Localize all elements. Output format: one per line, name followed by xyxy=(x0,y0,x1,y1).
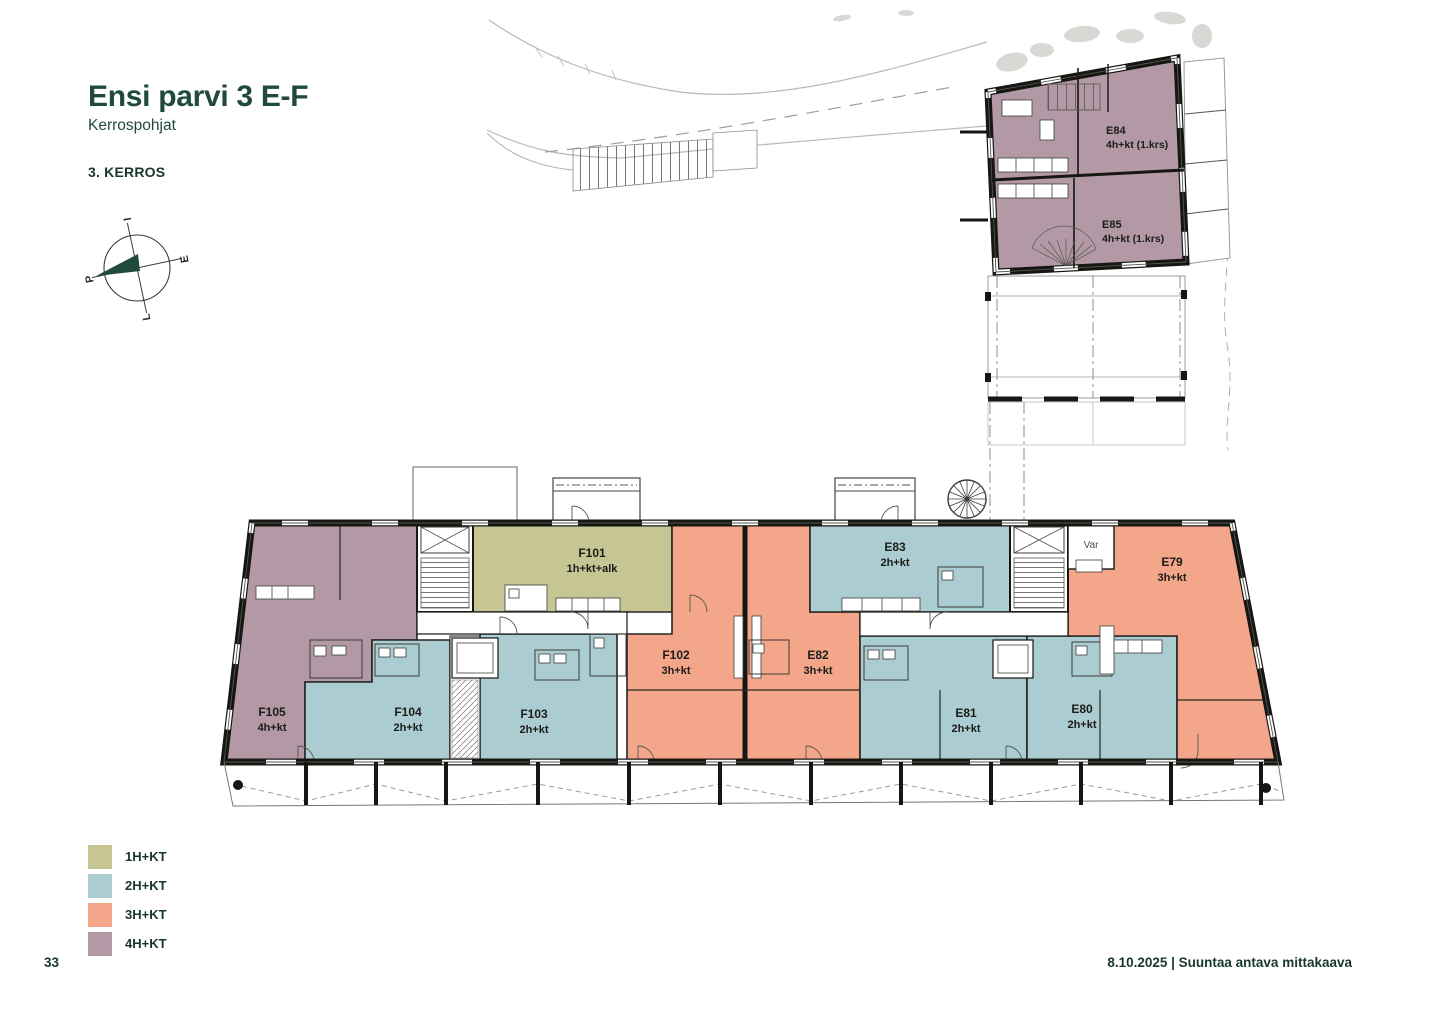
unit-type-f102: 3h+kt xyxy=(661,665,690,677)
legend-row-1hkt: 1H+KT xyxy=(88,842,167,871)
legend: 1H+KT 2H+KT 3H+KT 4H+KT xyxy=(88,842,167,958)
legend-row-4hkt: 4H+KT xyxy=(88,929,167,958)
ramp-hatch xyxy=(573,139,713,191)
unit-type-f101: 1h+kt+alk xyxy=(567,563,619,575)
balcony-posts xyxy=(304,762,1263,805)
unit-label-f103: F103 xyxy=(520,707,548,721)
legend-label-4hkt: 4H+KT xyxy=(125,936,167,951)
unit-type-e79: 3h+kt xyxy=(1157,572,1186,584)
legend-row-3hkt: 3H+KT xyxy=(88,900,167,929)
legend-swatch-2hkt xyxy=(88,874,112,898)
legend-label-2hkt: 2H+KT xyxy=(125,878,167,893)
legend-swatch-1hkt xyxy=(88,845,112,869)
legend-label-3hkt: 3H+KT xyxy=(125,907,167,922)
unit-type-e83: 2h+kt xyxy=(880,557,909,569)
compass-letter-right: E xyxy=(178,254,189,263)
compass-rose-icon: I E L P xyxy=(85,212,189,324)
upper-building: E84 4h+kt (1.krs) E85 4h+kt (1.krs) xyxy=(960,58,1230,272)
page-title: Ensi parvi 3 E-F xyxy=(88,80,308,114)
unit-label-e82: E82 xyxy=(807,648,829,662)
corridor-left xyxy=(417,612,627,634)
compass-north-arrow xyxy=(96,254,140,276)
footer-note: 8.10.2025 | Suuntaa antava mittakaava xyxy=(1107,955,1352,970)
main-building: F105 4h+kt F104 2h+kt F103 2h+kt F101 1h… xyxy=(224,523,1278,768)
compass-letter-bottom: L xyxy=(140,312,153,321)
unit-type-e81: 2h+kt xyxy=(951,723,980,735)
floorplan-drawing: E84 4h+kt (1.krs) E85 4h+kt (1.krs) xyxy=(0,0,1440,1018)
unit-type-f105: 4h+kt xyxy=(257,722,286,734)
roof-structures xyxy=(413,467,986,523)
corridor-right xyxy=(860,612,1068,636)
legend-swatch-3hkt xyxy=(88,903,112,927)
unit-type-f103: 2h+kt xyxy=(519,724,548,736)
unit-type-e85: 4h+kt (1.krs) xyxy=(1102,233,1164,245)
unit-type-e82: 3h+kt xyxy=(803,665,832,677)
spiral-staircase xyxy=(948,480,986,518)
terrace-grid xyxy=(985,276,1187,521)
unit-label-f102: F102 xyxy=(662,648,690,662)
unit-label-e83: E83 xyxy=(884,540,906,554)
unit-label-f104: F104 xyxy=(394,705,422,719)
page-subtitle: Kerrospohjat xyxy=(88,117,176,135)
legend-label-1hkt: 1H+KT xyxy=(125,849,167,864)
page-number: 33 xyxy=(44,955,59,970)
upper-balcony-strip xyxy=(1184,58,1230,264)
balcony-zone xyxy=(224,762,1284,806)
compass-letter-top: I xyxy=(122,216,134,221)
roof-terrace-2 xyxy=(835,478,915,523)
unit-label-f105: F105 xyxy=(258,705,286,719)
roof-terrace-1 xyxy=(553,478,640,523)
unit-label-f101: F101 xyxy=(578,546,606,560)
unit-label-e80: E80 xyxy=(1071,702,1093,716)
compass-letter-left: P xyxy=(85,274,97,283)
storage-label: Var xyxy=(1084,540,1099,551)
floorplan-page: { "header": { "title": "Ensi parvi 3 E-F… xyxy=(0,0,1440,1018)
legend-swatch-4hkt xyxy=(88,932,112,956)
unit-label-e84: E84 xyxy=(1106,125,1126,137)
upper-stairs xyxy=(1048,84,1100,110)
floor-label: 3. KERROS xyxy=(88,164,165,180)
unit-label-e81: E81 xyxy=(955,706,977,720)
legend-row-2hkt: 2H+KT xyxy=(88,871,167,900)
unit-area-f103 xyxy=(480,634,617,762)
unit-label-e85: E85 xyxy=(1102,219,1122,231)
unit-type-f104: 2h+kt xyxy=(393,722,422,734)
unit-label-e79: E79 xyxy=(1161,555,1183,569)
unit-type-e80: 2h+kt xyxy=(1067,719,1096,731)
unit-type-e84: 4h+kt (1.krs) xyxy=(1106,139,1168,151)
